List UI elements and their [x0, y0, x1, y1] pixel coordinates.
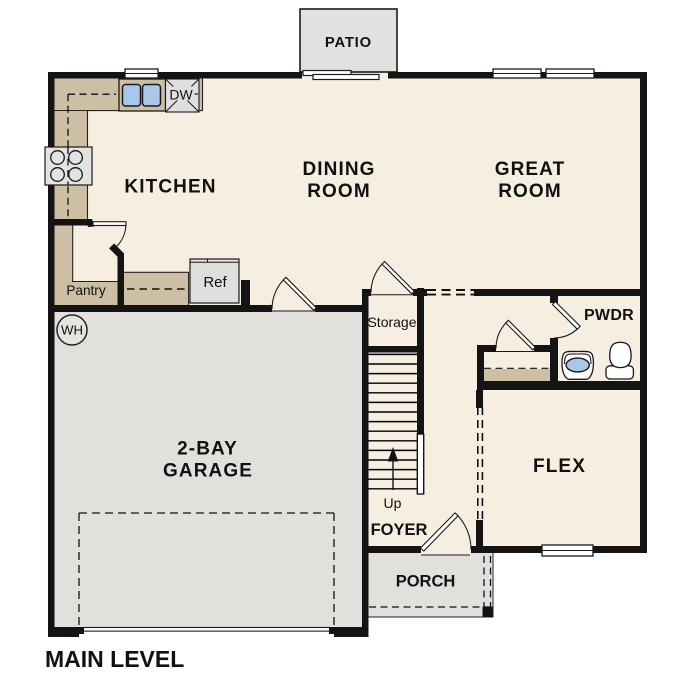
svg-text:GREAT: GREAT: [495, 159, 566, 180]
svg-text:2-BAY: 2-BAY: [177, 439, 238, 460]
svg-text:PORCH: PORCH: [396, 573, 456, 591]
svg-text:ROOM: ROOM: [498, 181, 562, 202]
svg-text:Up: Up: [384, 495, 402, 511]
svg-text:PATIO: PATIO: [325, 35, 372, 51]
svg-text:DW: DW: [169, 87, 193, 103]
svg-text:DINING: DINING: [302, 159, 375, 180]
svg-text:GARAGE: GARAGE: [163, 460, 253, 481]
svg-text:ROOM: ROOM: [307, 181, 371, 202]
svg-text:Pantry: Pantry: [66, 283, 105, 298]
svg-text:Storage: Storage: [367, 314, 416, 330]
svg-text:MAIN LEVEL: MAIN LEVEL: [45, 646, 184, 672]
svg-text:FOYER: FOYER: [371, 521, 428, 539]
svg-text:KITCHEN: KITCHEN: [124, 176, 216, 197]
svg-text:WH: WH: [61, 323, 83, 338]
svg-text:FLEX: FLEX: [533, 456, 586, 477]
svg-text:Ref: Ref: [203, 274, 227, 291]
svg-text:PWDR: PWDR: [584, 307, 634, 324]
